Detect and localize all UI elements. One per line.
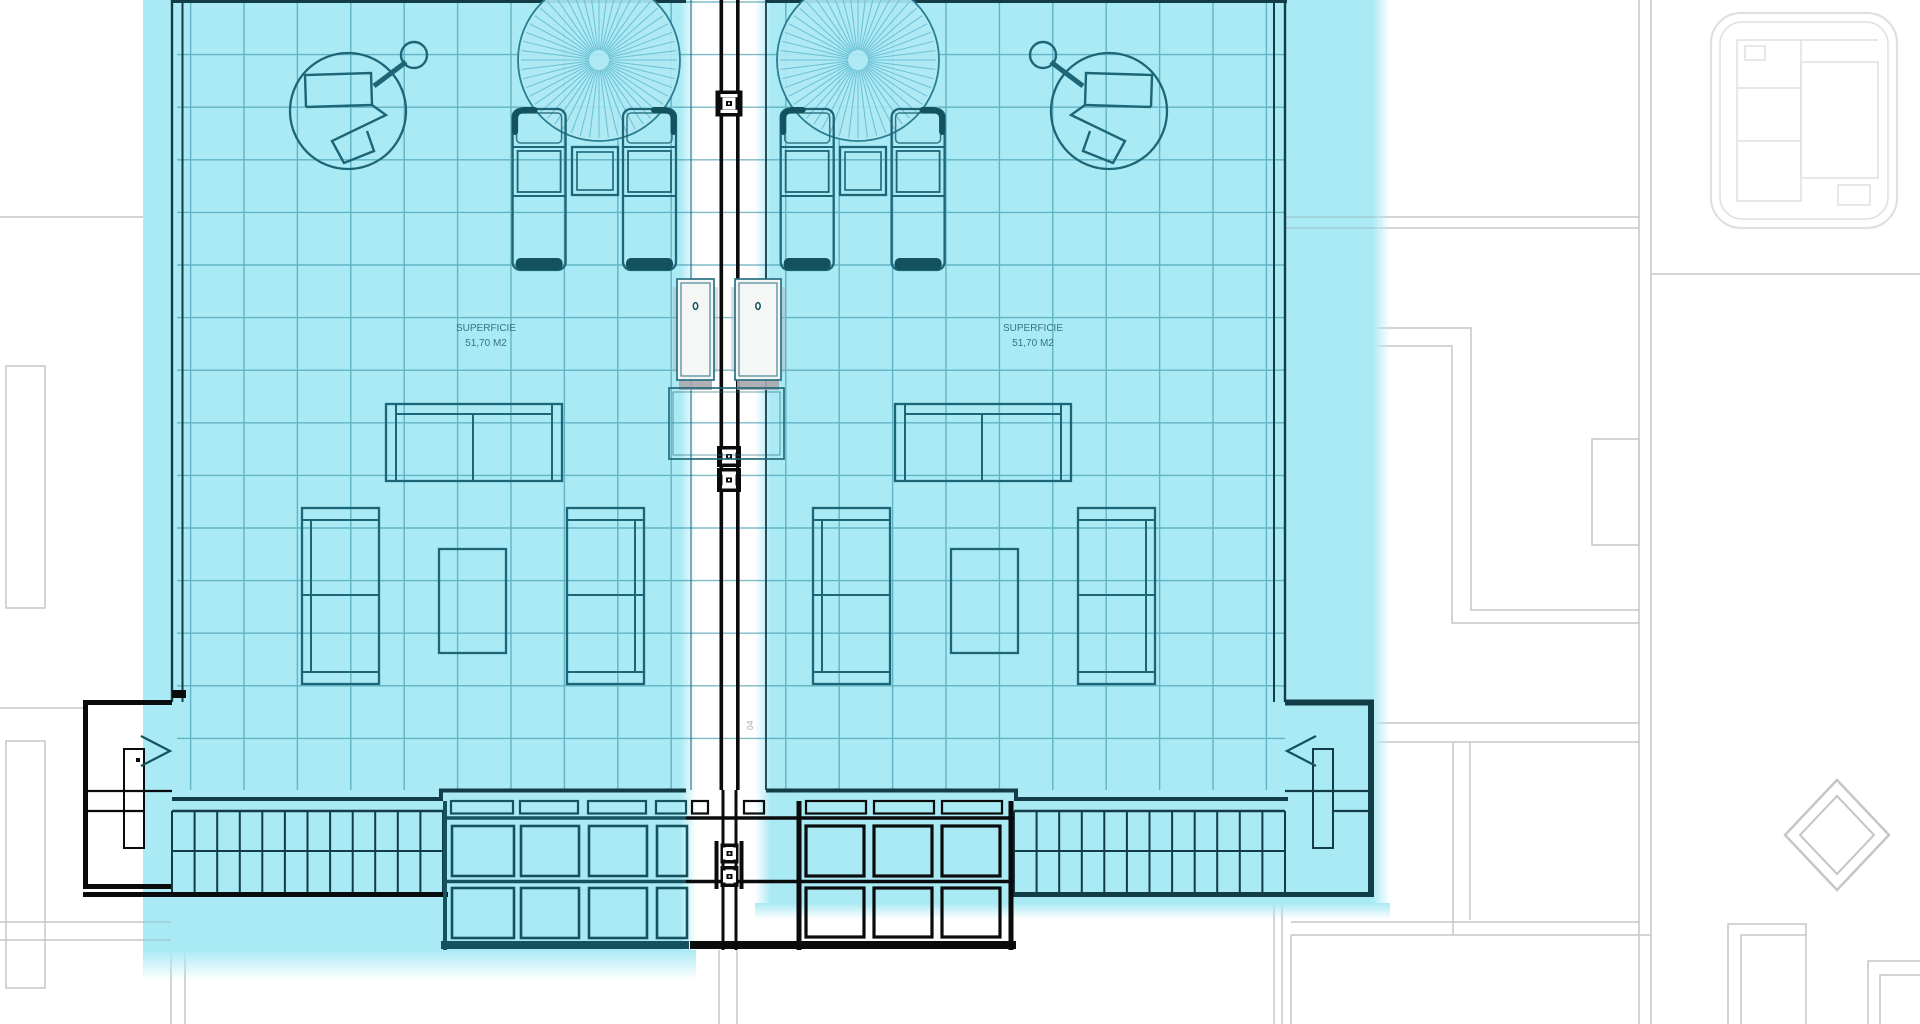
svg-text:04: 04	[745, 720, 755, 730]
svg-text:51,70 M2: 51,70 M2	[465, 338, 507, 349]
svg-text:SUPERFICIE: SUPERFICIE	[456, 323, 516, 334]
svg-text:SUPERFICIE: SUPERFICIE	[1003, 323, 1063, 334]
svg-text:51,70 M2: 51,70 M2	[1012, 338, 1054, 349]
